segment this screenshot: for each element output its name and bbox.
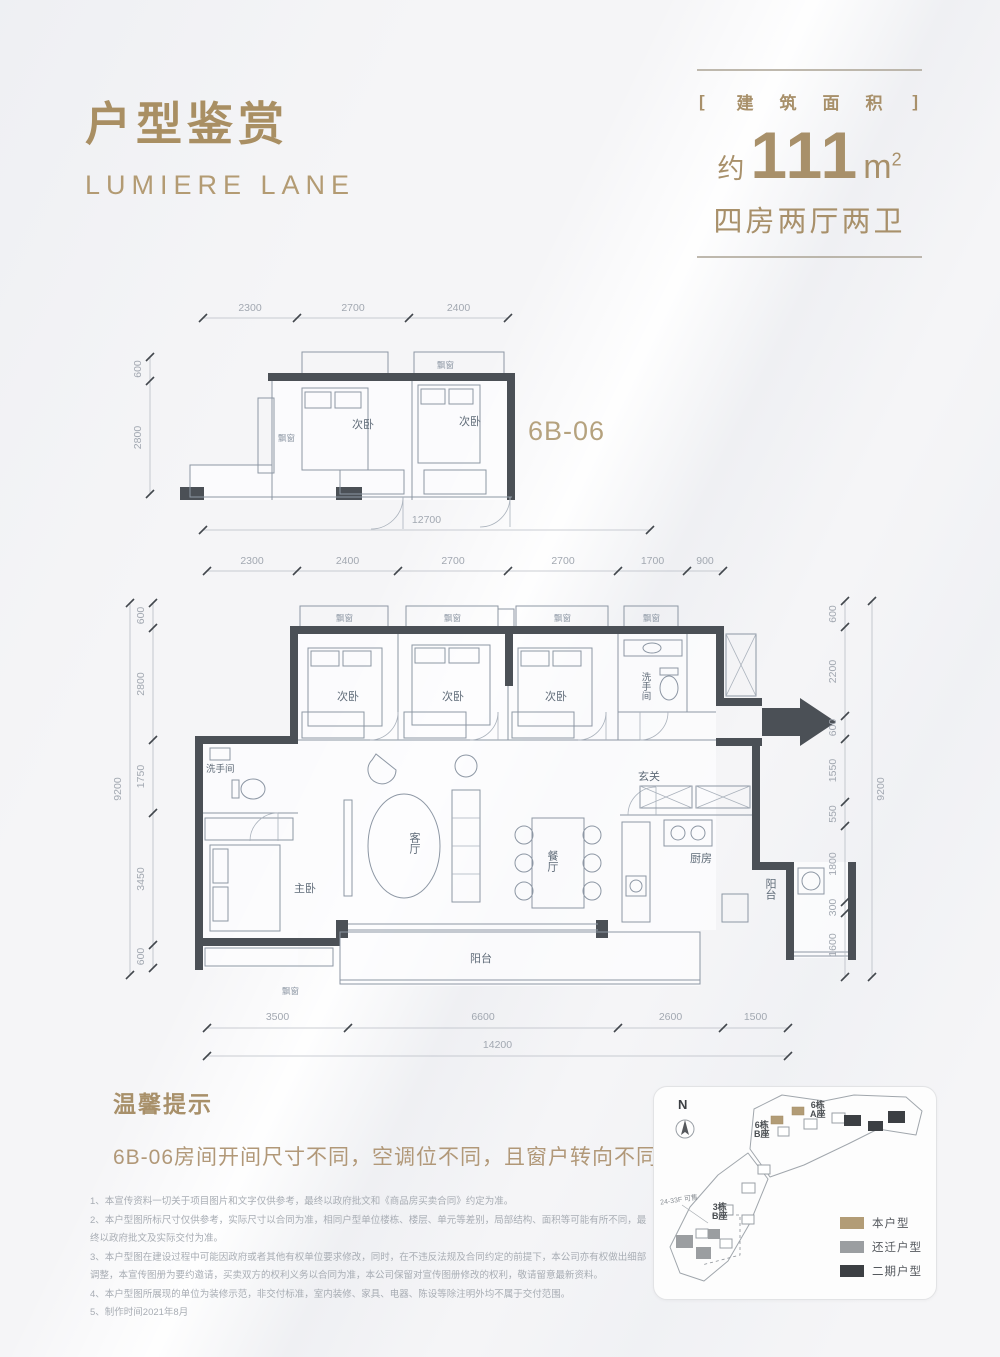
room-label-dining: 餐厅 (546, 849, 559, 872)
site-legend: 本户型 还迁户型 二期户型 (840, 1215, 922, 1287)
small-plan-top-dims: 230027002400 (199, 302, 512, 322)
small-plan-left-dims: 6002800 (132, 353, 154, 498)
main-plan-bottom-total-dim: 14200 (203, 1039, 792, 1060)
svg-text:900: 900 (696, 555, 714, 567)
bay-window-label: 飘窗 (282, 986, 299, 996)
tower-3b-line2: B座 (712, 1212, 728, 1221)
svg-text:12700: 12700 (412, 514, 441, 526)
svg-text:14200: 14200 (483, 1039, 512, 1051)
room-label-kitchen: 厨房 (690, 852, 712, 865)
bed (518, 648, 592, 726)
north-label: N (678, 1097, 687, 1112)
page-subtitle: LUMIERE LANE (85, 170, 355, 201)
bed (302, 388, 368, 470)
room-label-balcony-side: 阳台 (764, 878, 777, 900)
small-plan-bottom-total-dim: 12700 (199, 514, 654, 534)
main-floor-plan: 飘窗 飘窗 飘窗 飘窗 飘窗 次卧 次卧 次卧 洗手间 洗手间 主卧 客厅 餐厅… (112, 555, 887, 1060)
room-label-master: 主卧 (294, 882, 316, 895)
tower-label-6a: 6栋 A座 (810, 1101, 826, 1120)
bed (210, 845, 280, 931)
badge-top-rule (697, 69, 922, 71)
svg-text:2800: 2800 (132, 426, 144, 450)
legend-label: 本户型 (872, 1215, 910, 1231)
svg-text:600: 600 (135, 607, 147, 625)
legend-label: 还迁户型 (872, 1239, 922, 1255)
svg-text:2800: 2800 (135, 672, 147, 696)
area-value-row: 约 111 m2 (697, 122, 922, 188)
svg-text:2400: 2400 (447, 302, 471, 314)
svg-text:2700: 2700 (441, 555, 465, 567)
room-label-bedroom: 次卧 (459, 414, 481, 428)
room-label-living: 客厅 (408, 831, 421, 854)
bed (412, 645, 490, 725)
svg-text:1800: 1800 (827, 852, 839, 876)
tower-6b-line2: B座 (754, 1130, 770, 1139)
disclaimer-item: 2、本户型图所标尺寸仅供参考，实际尺寸以合同为准，相同户型单位楼栋、楼层、单元等… (90, 1212, 650, 1249)
bay-window-label: 飘窗 (336, 613, 353, 623)
room-label-balcony: 阳台 (470, 951, 492, 965)
svg-text:6600: 6600 (471, 1011, 495, 1023)
svg-text:1550: 1550 (827, 759, 839, 783)
site-map-card: N 6栋 B座 6栋 A座 3栋 B座 24-33F 可售 本户型 还迁户型 (653, 1086, 937, 1300)
parcel-north (750, 1095, 922, 1177)
svg-text:2600: 2600 (659, 1011, 683, 1023)
legend-swatch-relocation (840, 1241, 864, 1253)
this-unit-buildings (771, 1107, 804, 1124)
svg-text:1600: 1600 (827, 933, 839, 957)
area-value: 111 (750, 122, 859, 188)
bay-window-label: 飘窗 (643, 613, 660, 623)
disclaimer-item: 4、本户型图所展现的单位为装修示范，非交付标准，室内装修、家具、电器、陈设等除注… (90, 1286, 650, 1305)
small-floor-plan: 次卧 次卧 飘窗 飘窗 6B-06 230027002400 6002800 1… (132, 302, 654, 534)
badge-category-label: 建筑面积 (737, 89, 909, 114)
bay-window-label: 飘窗 (554, 613, 571, 623)
disclaimer-item: 3、本户型图在建设过程中可能因政府或者其他有权单位要求修改，同时，在不违反法规及… (90, 1249, 650, 1286)
bay-window-label: 飘窗 (444, 613, 461, 623)
svg-text:3500: 3500 (266, 1011, 290, 1023)
svg-text:1700: 1700 (641, 555, 665, 567)
svg-text:1750: 1750 (135, 765, 147, 789)
approx-label: 约 (717, 147, 744, 186)
unit-exp: 2 (892, 150, 902, 170)
bay-window-label: 飘窗 (437, 360, 454, 370)
compass-icon (676, 1120, 694, 1138)
svg-text:600: 600 (135, 948, 147, 966)
room-label-bedroom: 次卧 (442, 689, 464, 703)
room-label-bedroom: 次卧 (337, 689, 359, 703)
room-label-bedroom: 次卧 (352, 417, 374, 431)
svg-text:2700: 2700 (341, 302, 365, 314)
tower-6a-line2: A座 (810, 1110, 826, 1119)
legend-swatch-this-unit (840, 1217, 864, 1229)
disclaimer-item: 1、本宣传资料一切关于项目图片和文字仅供参考，最终以政府批文和《商品房买卖合同》… (90, 1193, 650, 1212)
room-label-bedroom: 次卧 (545, 689, 567, 703)
legend-swatch-phase2 (840, 1265, 864, 1277)
main-plan-right-dims: 6002200600155055018003001600 (827, 597, 849, 981)
svg-text:300: 300 (827, 899, 839, 917)
brochure-page: 户型鉴赏 LUMIERE LANE [ 建筑面积 ] 约 111 m2 四房两厅… (0, 0, 1000, 1357)
unit-code-label: 6B-06 (528, 416, 605, 446)
room-label-bathroom: 洗手间 (206, 763, 235, 775)
legend-row: 还迁户型 (840, 1239, 922, 1255)
svg-text:2700: 2700 (551, 555, 575, 567)
svg-text:600: 600 (827, 719, 839, 737)
area-badge: [ 建筑面积 ] 约 111 m2 四房两厅两卫 (697, 69, 922, 258)
svg-text:1500: 1500 (744, 1011, 768, 1023)
legend-label: 二期户型 (872, 1263, 922, 1279)
svg-text:2300: 2300 (238, 302, 262, 314)
bracket-open: [ (699, 92, 707, 112)
legend-row: 本户型 (840, 1215, 922, 1231)
tower-label-6b: 6栋 B座 (754, 1121, 770, 1140)
disclaimer-list: 1、本宣传资料一切关于项目图片和文字仅供参考，最终以政府批文和《商品房买卖合同》… (90, 1193, 650, 1323)
main-plan-bottom-dims: 3500660026001500 (203, 1011, 792, 1032)
disclaimer-item: 5、制作时间2021年8月 (90, 1304, 650, 1323)
main-plan-right-total-dim: 9200 (868, 597, 887, 981)
main-plan-left-dims: 600280017503450600 (135, 599, 157, 972)
svg-text:9200: 9200 (875, 777, 887, 801)
entry-arrow (762, 698, 836, 746)
badge-category: [ 建筑面积 ] (697, 89, 922, 114)
unit-layout: 四房两厅两卫 (697, 198, 922, 240)
svg-text:9200: 9200 (112, 777, 124, 801)
legend-row: 二期户型 (840, 1263, 922, 1279)
unit-m: m (863, 148, 891, 186)
page-title: 户型鉴赏 (85, 88, 355, 154)
room-label-entry: 玄关 (638, 769, 660, 783)
svg-text:2400: 2400 (336, 555, 360, 567)
svg-text:2300: 2300 (240, 555, 264, 567)
room-label-bathroom: 洗手间 (640, 671, 652, 701)
tower-label-3b: 3栋 B座 (712, 1203, 728, 1222)
phase2-buildings (844, 1111, 905, 1131)
svg-text:2200: 2200 (827, 660, 839, 684)
bed (308, 648, 382, 726)
badge-bottom-rule (697, 256, 922, 258)
main-plan-top-dims: 23002400270027001700900 (203, 555, 727, 575)
bed (418, 385, 480, 463)
unsold-buildings (696, 1113, 845, 1248)
svg-text:550: 550 (827, 805, 839, 823)
tips-section: 温馨提示 6B-06房间开间尺寸不同，空调位不同，且窗户转向不同 (113, 1085, 658, 1171)
main-plan-left-total-dim: 9200 (112, 599, 134, 979)
area-unit: m2 (863, 148, 901, 187)
header: 户型鉴赏 LUMIERE LANE (85, 88, 355, 201)
bay-window-label: 飘窗 (278, 433, 295, 443)
sale-note-leader (682, 1205, 708, 1223)
bracket-close: ] (912, 92, 920, 112)
tips-body: 6B-06房间开间尺寸不同，空调位不同，且窗户转向不同 (113, 1141, 658, 1171)
tips-title: 温馨提示 (113, 1085, 658, 1119)
svg-text:600: 600 (132, 360, 144, 378)
svg-text:600: 600 (827, 605, 839, 623)
svg-text:3450: 3450 (135, 867, 147, 891)
